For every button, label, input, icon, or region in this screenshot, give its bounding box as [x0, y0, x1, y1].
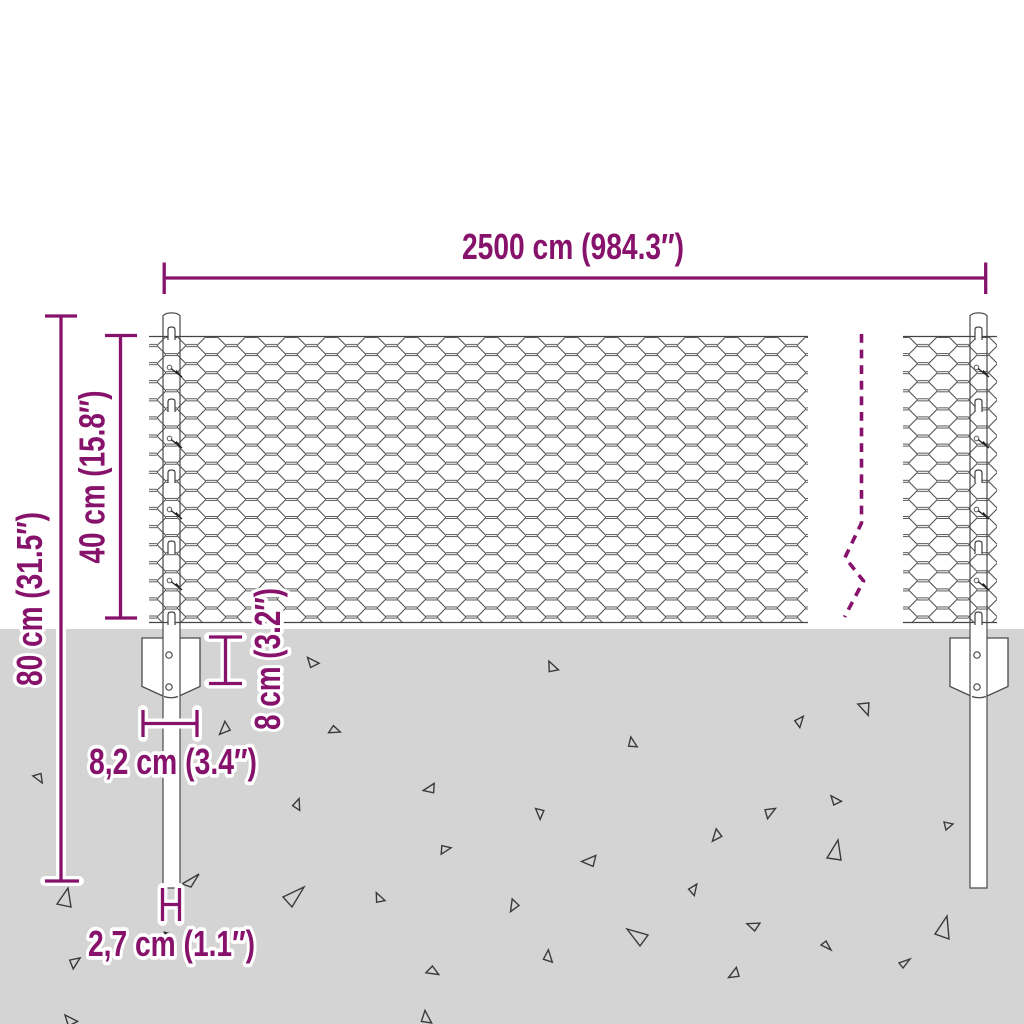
svg-text:2500 cm (984.3″): 2500 cm (984.3″) [462, 226, 684, 267]
svg-text:80 cm (31.5″): 80 cm (31.5″) [9, 512, 50, 686]
svg-text:40 cm (15.8″): 40 cm (15.8″) [72, 391, 113, 564]
svg-text:8 cm (3.2″): 8 cm (3.2″) [247, 588, 288, 730]
svg-text:2,7 cm (1.1″): 2,7 cm (1.1″) [88, 923, 255, 964]
svg-text:8,2 cm (3.4″): 8,2 cm (3.4″) [89, 741, 257, 782]
